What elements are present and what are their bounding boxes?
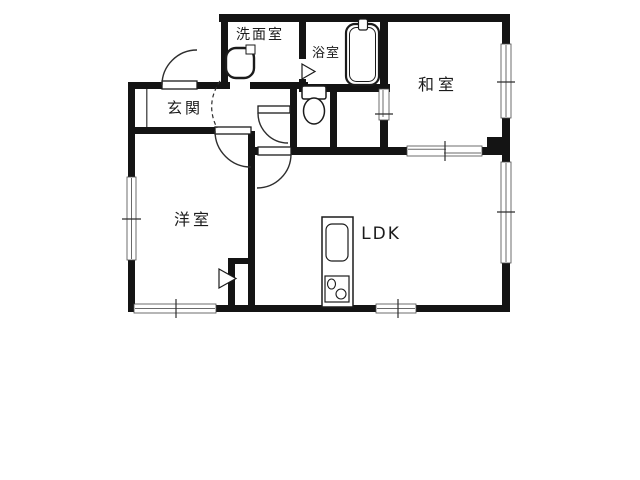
window-bottom-west	[134, 299, 216, 318]
room-label-entrance: 玄関	[167, 99, 203, 117]
hall-door-upper	[258, 106, 290, 143]
washbasin-icon	[226, 45, 255, 78]
floorplan-page: 洗面室 浴室 和室 玄関 洋室 LDK	[0, 0, 640, 480]
western-room-door	[215, 127, 251, 167]
window-left-wall	[122, 177, 141, 260]
bathtub-icon	[346, 19, 379, 85]
ldk-door-arc	[257, 154, 291, 188]
entrance-step-line	[146, 89, 148, 127]
window-right-japanese-room	[497, 44, 515, 118]
room-label-ldk: LDK	[361, 224, 401, 244]
room-label-washroom: 洗面室	[236, 26, 284, 43]
ldk-door	[257, 147, 291, 188]
western-room-door-arc	[215, 131, 251, 167]
floorplan-canvas: 洗面室 浴室 和室 玄関 洋室 LDK	[0, 0, 640, 480]
sliding-door-japanese-ldk	[407, 141, 482, 161]
sliding-door-closet	[375, 89, 393, 120]
entrance-door	[162, 50, 197, 89]
bath-door-triangle-icon	[302, 64, 315, 79]
window-bottom-ldk	[376, 299, 416, 318]
hall-door-upper-arc	[258, 113, 288, 143]
room-label-bathroom: 浴室	[312, 45, 340, 61]
room-label-western-room: 洋室	[174, 210, 212, 229]
entrance-door-arc	[162, 50, 197, 85]
kitchen-unit-icon	[322, 217, 353, 307]
toilet-icon	[302, 86, 326, 124]
window-right-ldk	[497, 162, 515, 263]
room-label-japanese-room: 和室	[418, 75, 458, 94]
